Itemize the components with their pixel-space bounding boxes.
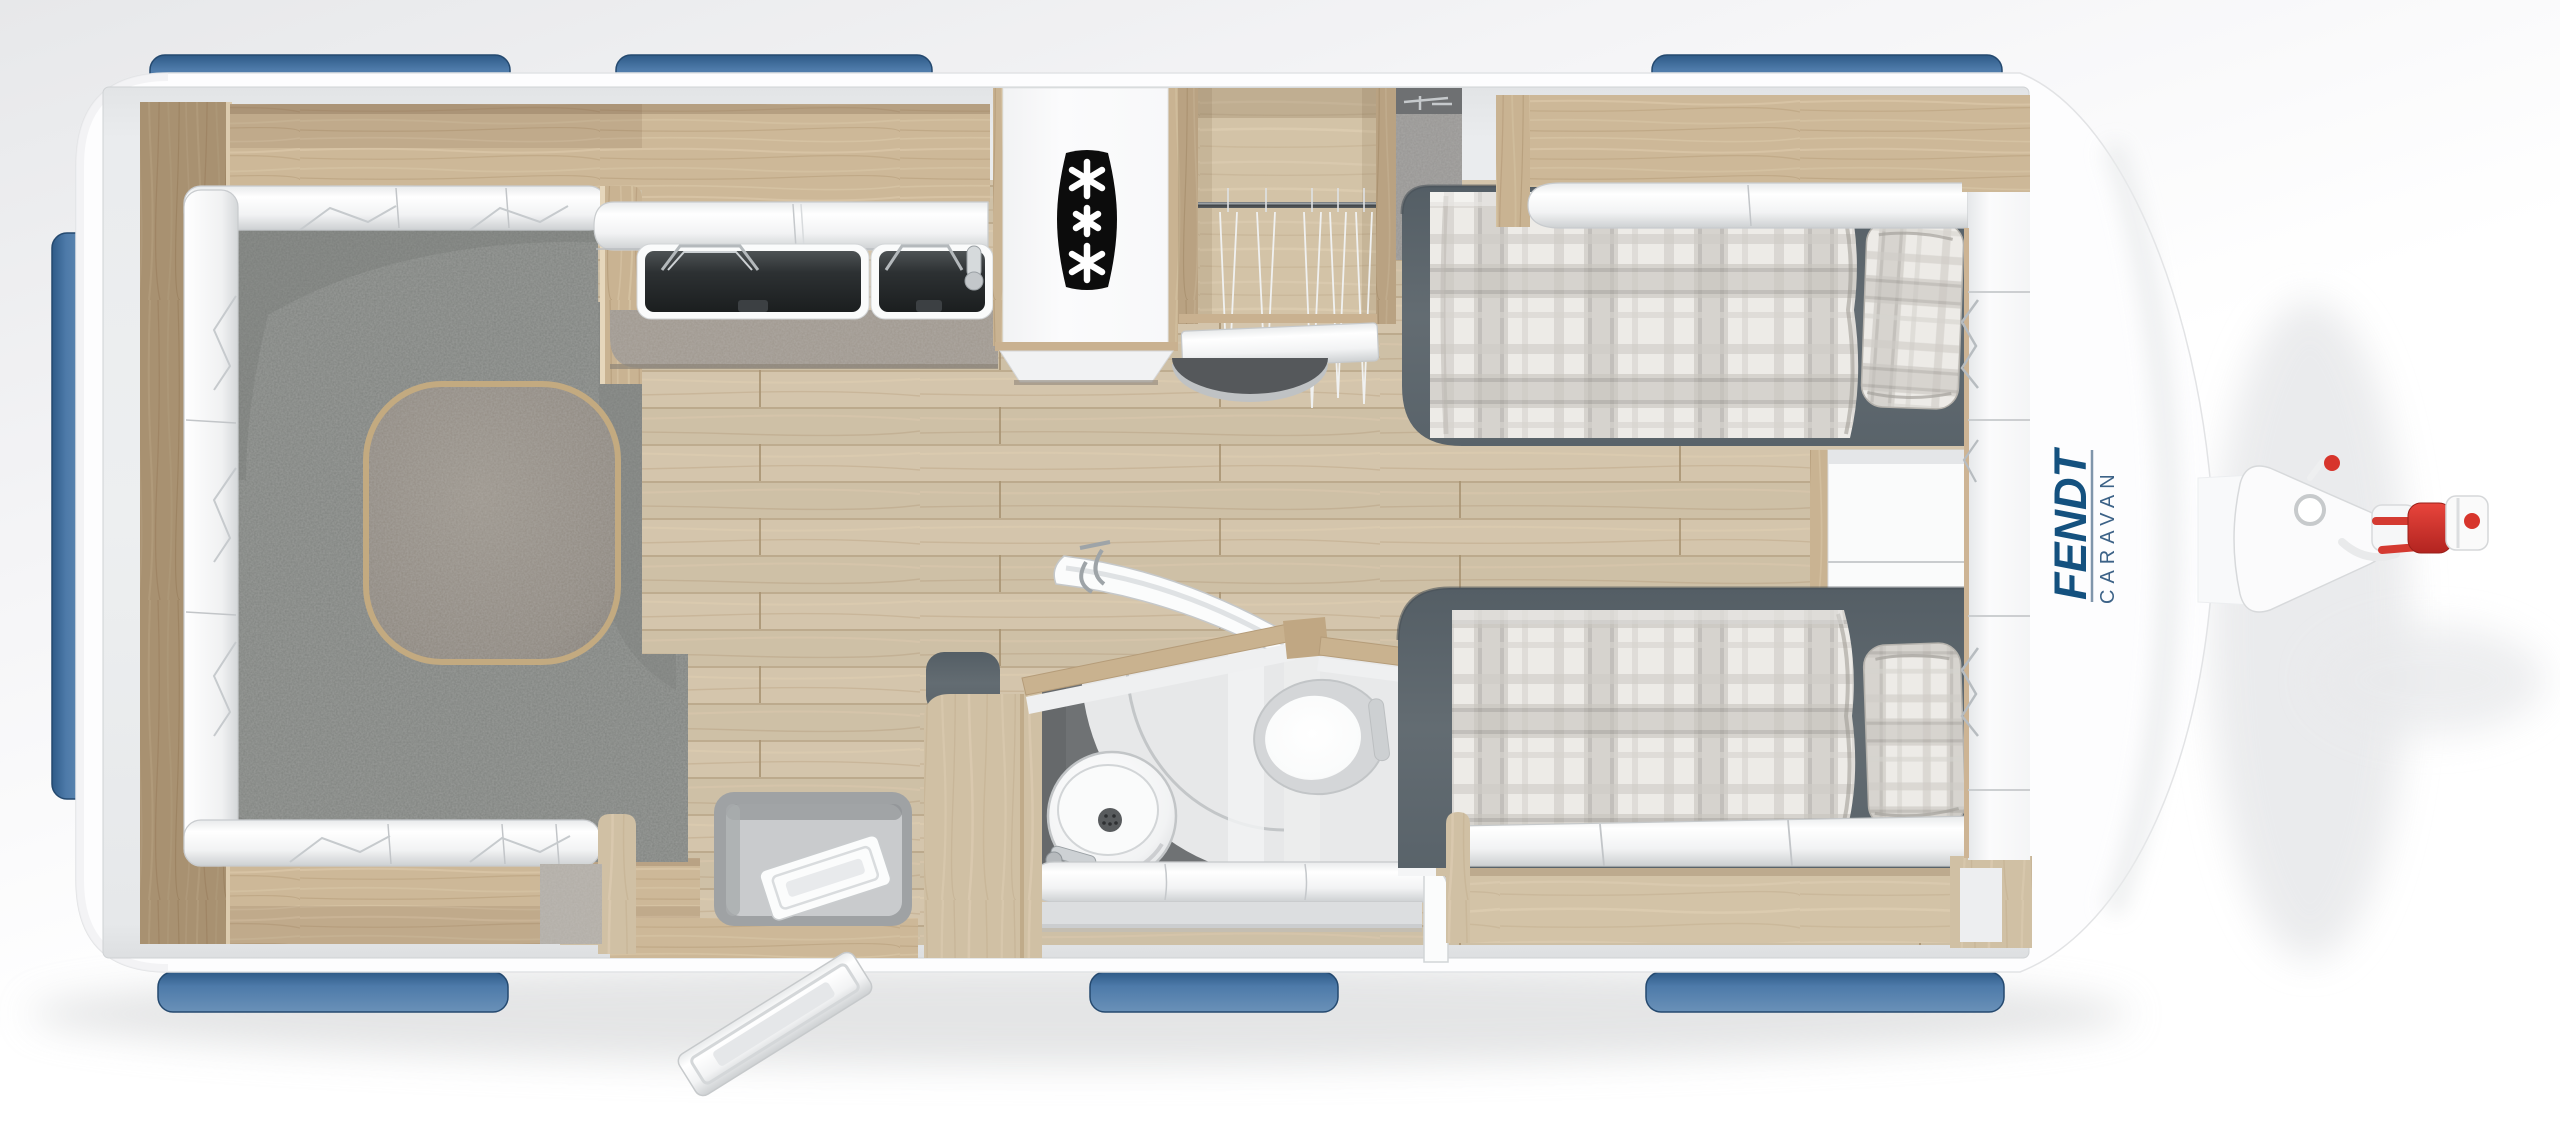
svg-text:FENDT: FENDT — [2045, 447, 2096, 600]
svg-text:CARAVAN: CARAVAN — [2097, 468, 2119, 604]
